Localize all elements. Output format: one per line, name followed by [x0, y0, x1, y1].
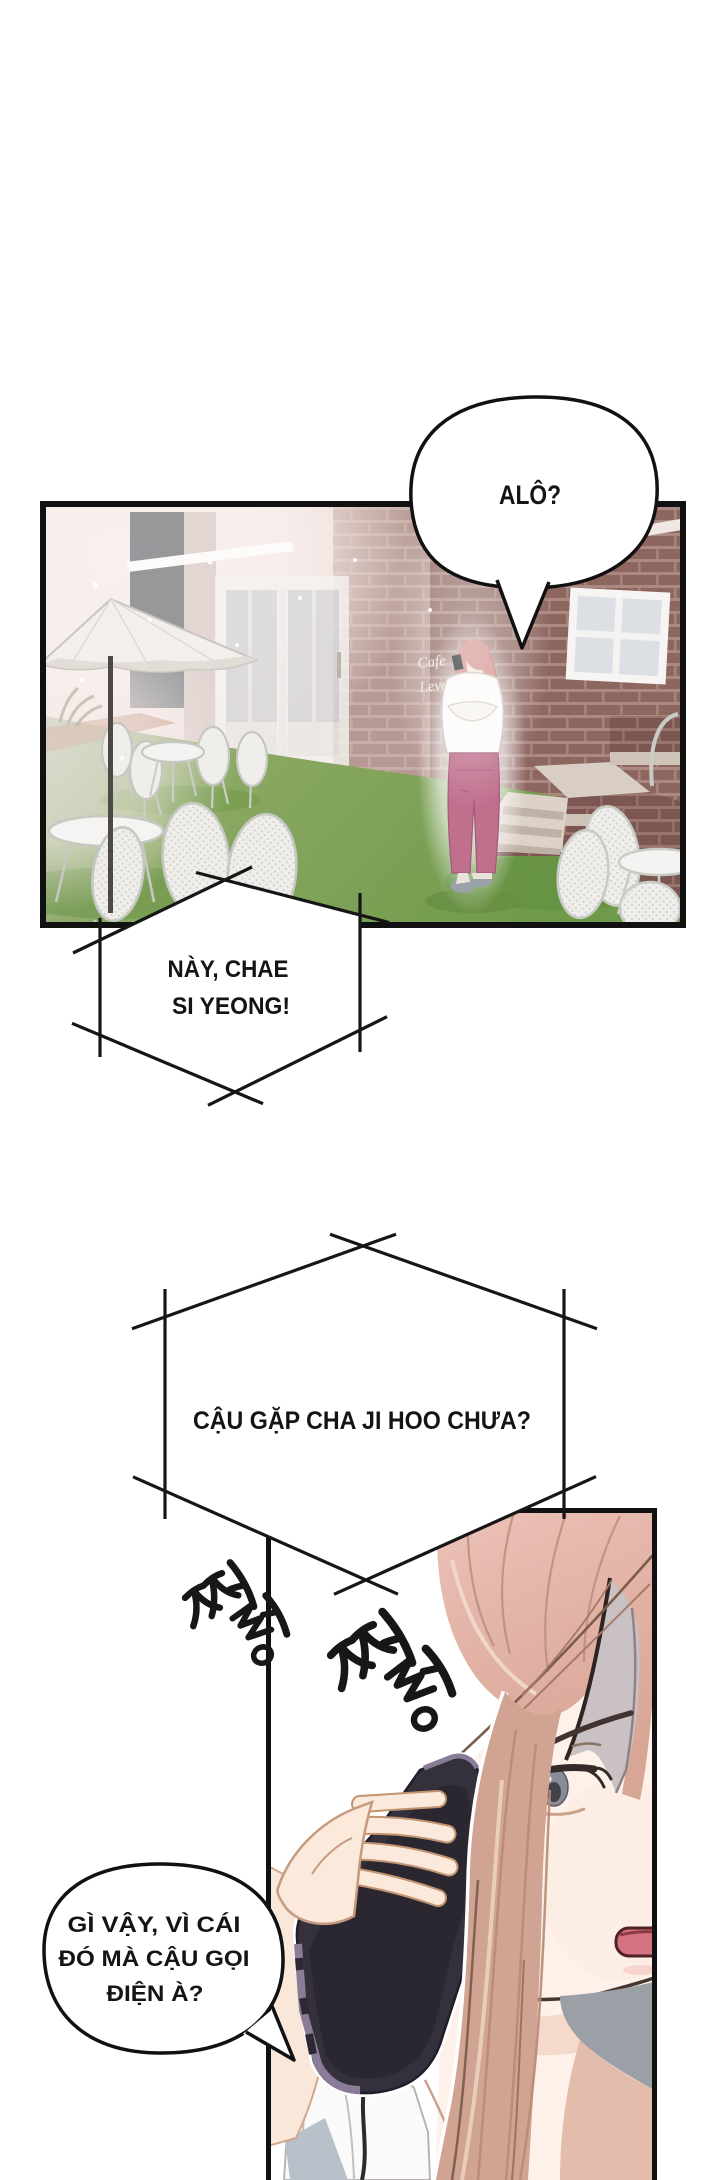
svg-text:ALÔ?: ALÔ?	[499, 479, 561, 510]
svg-text:ĐÓ MÀ CẬU GỌI: ĐÓ MÀ CẬU GỌI	[59, 1946, 250, 1971]
svg-text:CẬU GẶP CHA JI HOO CHƯA?: CẬU GẶP CHA JI HOO CHƯA?	[193, 1405, 531, 1435]
svg-text:SI YEONG!: SI YEONG!	[172, 993, 290, 1020]
svg-text:NÀY, CHAE: NÀY, CHAE	[168, 955, 289, 983]
svg-text:ĐIỆN À?: ĐIỆN À?	[107, 1981, 204, 2006]
svg-text:GÌ VẬY, VÌ CÁI: GÌ VẬY, VÌ CÁI	[68, 1912, 241, 1937]
